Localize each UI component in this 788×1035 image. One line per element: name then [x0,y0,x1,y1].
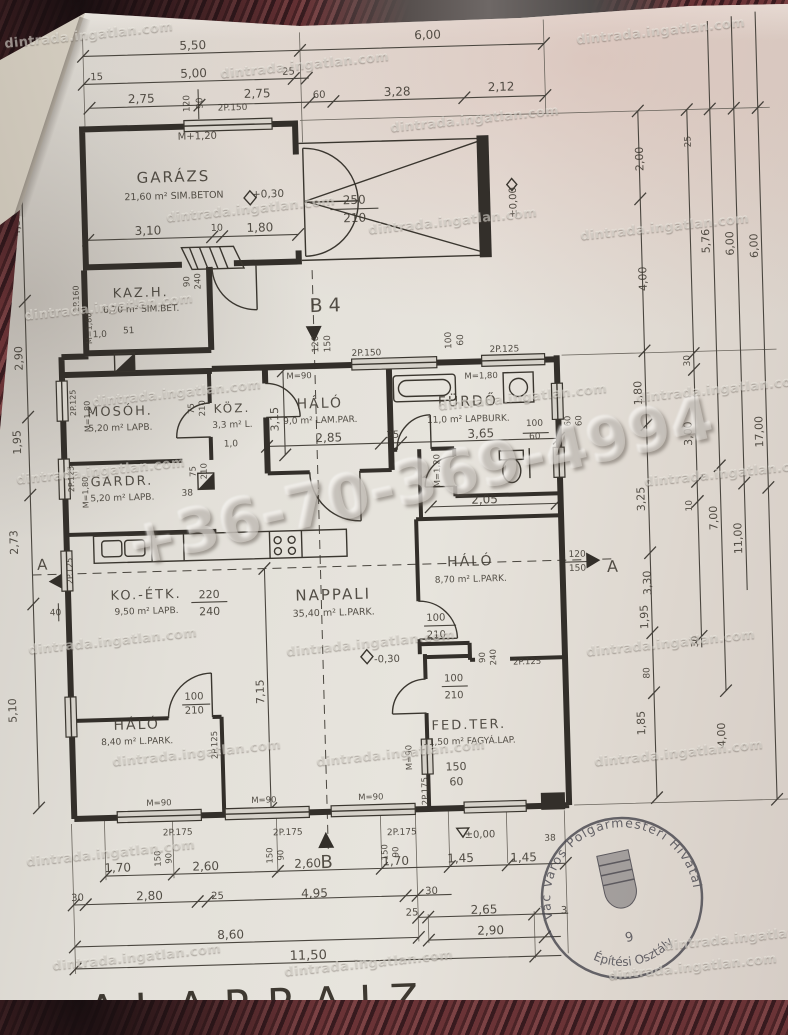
section-mark-b4: B 4 [309,294,341,317]
dim: 10 [685,500,695,512]
dim: 15 [90,72,103,83]
garage-entry-canopy [179,135,492,270]
door-size: 210 [444,690,463,702]
dim: 30 [71,893,84,904]
door-size: 210 [427,630,446,642]
sill-size: 90 [164,853,174,864]
dim: 1,45 [510,850,537,865]
window-type: 2P.150 [218,103,248,114]
window-size: 150 [323,335,333,353]
dim: 2,80 [136,889,163,904]
window-size: 120 [182,95,192,113]
room-area: 5,20 m² LAPB. [88,423,152,435]
door-size: 220 [198,588,219,602]
room-area: 8,70 m² L.PARK. [435,574,507,586]
dim: 8,60 [217,927,244,942]
room-name-halo2: HÁLÓ [447,551,494,570]
door-size: 90 [478,652,488,663]
dim: 1,95 [10,430,24,455]
sill-size: 150 [153,850,163,867]
window-type: 2P.125 [66,466,76,493]
sill-height: M=1,80 [83,401,93,433]
dim: 1,45 [447,851,474,866]
door-size: 90 [182,276,192,287]
dim: 1,80 [631,381,645,406]
sill-size: 90 [276,850,286,861]
dim: 3,65 [467,426,494,441]
door-size: 210 [198,400,208,417]
level-mark: ±0,00 [508,187,520,218]
room-area: 35,40 m² L.PARK. [293,606,375,619]
dim: 1,70 [104,860,131,875]
sill-height: M=90 [286,371,312,382]
dim: 30 [425,886,438,897]
dim: 60 [313,90,326,101]
dim: 4,00 [636,266,650,291]
room-area: 5,20 m² LAPB. [90,493,154,505]
door-size: 100 [444,673,463,685]
window-size: 120 [311,335,321,353]
dim: 2,60 [192,859,219,874]
window-type: 2P.160 [71,285,81,312]
room-name-fedter: FED.TER. [431,717,506,734]
sill-size: 150 [265,847,275,864]
door-size: 100 [426,613,445,625]
room-area: 9,0 m² LAM.PAR. [283,415,357,427]
dim: 2,65 [470,902,497,917]
dim: 25 [211,891,224,902]
door-size: 75 [187,403,197,414]
door-size: 240 [489,649,499,666]
sill-height: M=90 [404,745,415,771]
level-mark: ±0,00 [464,829,495,841]
dim: 2,85 [315,430,342,445]
sill-height: M=90 [251,795,277,806]
wall-type: 2P.125 [210,731,221,759]
sill-height: M=90 [358,792,384,803]
dim: 2,90 [477,923,504,938]
door-size: 210 [185,705,204,717]
window-type: 2P.175 [387,827,417,838]
dim: 3,25 [634,487,648,512]
room-area: 9,50 m² LAPB. [114,606,178,618]
room-area: 11,0 m² LAPBURK. [427,414,510,426]
dim: 5,50 [179,38,206,53]
dim: 51 [123,326,135,336]
window-type: 2P.125 [489,344,519,355]
dim: 25 [386,430,399,441]
room-area: 3,3 m² L. [212,420,253,431]
room-name-halo3: HÁLÓ [113,715,160,734]
dim: 30 [683,355,693,367]
walls [55,113,569,819]
section-mark-a: A [37,556,48,574]
level-mark: +0,30 [252,188,285,201]
room-name-furdo: FÜRDŐ [438,391,498,411]
room-area: 21,60 m² SIM.BETON [124,190,224,204]
door-size: 240 [193,273,203,290]
window-type: 2P.175 [273,828,303,839]
window-type: 2P.175 [420,777,431,805]
dim: 1,70 [382,854,409,869]
sill-height: M=1,80 [464,371,498,382]
dim: 25 [406,907,419,918]
svg-text:Építési Osztály: Építési Osztály [589,932,679,976]
sill-height: M=90 [146,798,172,809]
dim: 4,95 [301,886,328,901]
fixtures [84,177,566,847]
dim: 2,60 [294,856,321,871]
dim: 5,10 [6,698,20,723]
dim: 11,50 [289,948,327,964]
stamp-arc-bottom: Építési Osztály [589,932,679,976]
room-name-nappali: NAPPALI [295,585,371,605]
dim: 5,76 [699,229,713,254]
dim: 40 [50,608,62,618]
dim: 11,00 [731,522,745,554]
room-area: 11,50 m² FAGYÁ.LAP. [423,734,516,749]
room-area: 8,40 m² L.PARK. [101,736,173,748]
dim: 60 [574,415,584,426]
dim: 60 [563,415,573,426]
dim: 2,90 [12,346,26,371]
window-type: 2P.125 [68,389,78,416]
window-size: 90 [195,97,205,109]
sill-height: M=1,20 [432,454,443,488]
door-size: 75 [189,466,199,477]
door-size: 240 [199,605,220,619]
dim: 6,00 [747,233,761,258]
dim: 30 [690,635,700,647]
sill-height: M=1,80 [81,477,91,509]
door-size: 250 [343,193,366,208]
window-type: 2P.175 [163,828,193,839]
section-mark-a: A [607,557,619,576]
dim: 120 [568,550,586,560]
dim: 150 [569,564,587,574]
room-name-mosoh: MOSÓH. [87,403,153,421]
window-size: 100 [526,419,544,429]
dim: 5,00 [180,66,207,81]
dim: 4,00 [715,722,729,747]
blueprint-paper: 5,50 6,00 15 5,00 25 2,75 2,75 60 3,28 2… [0,0,788,1000]
dim: 2,75 [244,86,271,101]
dim: 38 [544,834,556,844]
sill-height: M=1,80 [84,313,94,345]
dim: 3,28 [384,84,411,99]
dim: 3,15 [268,407,282,432]
window-type: 2P.150 [351,348,381,359]
dim: 2,00 [633,146,647,171]
dim: 3 [561,905,568,916]
dim: 17,00 [752,416,766,448]
window-size: 100 [444,331,454,349]
dim: 3,00 [681,421,695,446]
window-size: 60 [449,775,463,788]
municipality-stamp: Vác Város Polgármesteri Hivatal Építési … [523,799,721,993]
coat-of-arms [597,850,640,911]
dim: 7,15 [254,679,268,704]
dim: 1,95 [638,605,652,630]
dim: 3,30 [641,570,655,595]
dim: 2,73 [7,530,21,555]
section-mark-b: B [320,852,333,873]
dim: 1,80 [246,220,273,235]
stamp-number: 9 [624,930,635,946]
room-area: 6,70 m² SIM.BET. [103,304,180,316]
room-name-koz: KÖZ. [213,399,250,416]
dim: 2,12 [488,79,515,94]
window-type: 2P.125 [65,558,75,585]
dim: 80 [642,667,652,679]
window-size: 150 [445,760,466,774]
dim: 6,00 [414,27,441,42]
dim: 7,00 [707,506,721,531]
room-name-koetk: KO.-ÉTK. [110,586,182,604]
room-name-kazh: KAZ.H. [113,285,169,302]
room-name-halo1: HÁLÓ [296,393,343,412]
dim: 2,75 [128,91,155,106]
dim: 38 [181,488,193,498]
dim: 6,00 [723,231,737,256]
window-size: 60 [529,432,541,442]
room-name-gardr: GARDR. [90,474,153,491]
level-mark: -0,30 [374,654,400,666]
window-type: 2P.125 [513,657,541,668]
dim: 2,05 [471,492,498,507]
dim: 25 [684,136,694,148]
door-size: 100 [184,691,203,703]
sill-height: M+1,20 [178,131,218,143]
door-size: 210 [199,463,209,480]
dim: 1,0 [224,439,239,449]
room-name-garazs: GARÁZS [136,166,210,187]
dim: 1,0 [93,330,108,340]
dim: 3,10 [134,223,161,238]
dim: 1,85 [635,711,649,736]
dim: 10 [211,223,223,234]
dim: 25 [282,66,295,77]
window-size: 60 [456,334,466,346]
floor-plan-drawing: 5,50 6,00 15 5,00 25 2,75 2,75 60 3,28 2… [0,0,788,1000]
door-size: 210 [343,211,366,226]
